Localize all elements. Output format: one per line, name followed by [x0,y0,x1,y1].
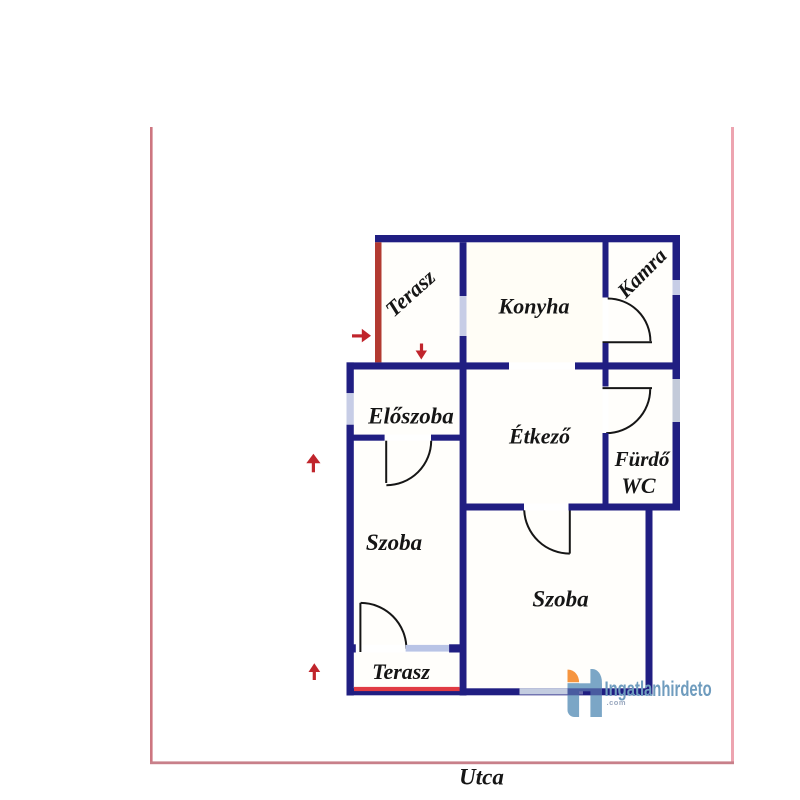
svg-text:Terasz: Terasz [372,659,430,684]
svg-text:Fürdő: Fürdő [614,447,671,471]
svg-text:Étkező: Étkező [508,424,572,449]
svg-text:Konyha: Konyha [498,294,570,319]
svg-text:WC: WC [621,473,656,498]
svg-text:Előszoba: Előszoba [367,404,454,429]
svg-text:Szoba: Szoba [532,587,588,612]
svg-text:Utca: Utca [459,765,504,790]
svg-text:.com: .com [607,698,627,707]
svg-text:Szoba: Szoba [366,530,422,555]
